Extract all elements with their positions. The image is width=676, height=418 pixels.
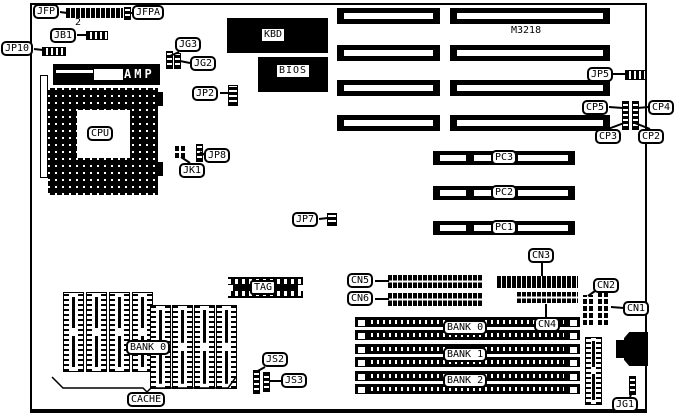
- cn1-block: [598, 293, 610, 325]
- callout-jk1: JK1: [179, 163, 205, 178]
- isa-slot: [450, 115, 610, 131]
- pc3-label: PC3: [491, 150, 517, 165]
- amp-label: AMP: [124, 67, 155, 81]
- motherboard-diagram: JFP 2 JFPA JB1 JP10 JG3 JG2 AMP CPU KBD …: [0, 0, 676, 418]
- callout-js2: JS2: [262, 352, 288, 367]
- isa-slot: [337, 8, 440, 24]
- cache-chip: [86, 292, 107, 372]
- cn4-connector: [517, 292, 578, 303]
- amp-bar-slot: [56, 70, 93, 73]
- cache-bank0-label: BANK 0: [126, 340, 170, 355]
- jp2-jumper: [228, 85, 238, 106]
- isa-slot: [450, 45, 610, 61]
- callout-jp8: JP8: [204, 148, 230, 163]
- cache-chip: [63, 292, 84, 372]
- cache-label: CACHE: [127, 392, 165, 407]
- cache-chip: [194, 305, 215, 389]
- cn2-block: [583, 295, 595, 325]
- bank1-label: BANK 1: [443, 347, 487, 362]
- isa-slot: [450, 80, 610, 96]
- isa-slot: [450, 8, 610, 24]
- jfpa-connector: [124, 7, 131, 20]
- callout-jfp: JFP: [33, 4, 59, 19]
- callout-cp3: CP3: [595, 129, 621, 144]
- callout-jfpa: JFPA: [132, 5, 164, 20]
- cn3-connector: [497, 276, 578, 288]
- callout-cp5: CP5: [582, 100, 608, 115]
- cp-jumper-strip-right: [632, 101, 639, 130]
- js2-jumper: [253, 370, 260, 394]
- bios-label: BIOS: [277, 65, 309, 77]
- jb1-jumper: [86, 31, 108, 40]
- isa-slot: [337, 115, 440, 131]
- callout-cn1: CN1: [623, 301, 649, 316]
- cn6-connector: [388, 293, 482, 306]
- bank0-label: BANK 0: [443, 320, 487, 335]
- jp5-jumper: [625, 70, 646, 80]
- callout-jp10: JP10: [1, 41, 33, 56]
- bank2-label: BANK 2: [443, 373, 487, 388]
- jp8-jumper: [196, 144, 203, 162]
- callout-jg3: JG3: [175, 37, 201, 52]
- cpu-label: CPU: [87, 126, 113, 141]
- cp-jumper-strip-left: [622, 101, 629, 130]
- callout-jb1: JB1: [50, 28, 76, 43]
- keyboard-din-connector: [624, 332, 648, 366]
- board-model-text: M3218: [511, 25, 541, 36]
- callout-jp5: JP5: [587, 67, 613, 82]
- jg1-jumper: [629, 376, 636, 395]
- tag-label: TAG: [250, 280, 276, 295]
- pc2-label: PC2: [491, 185, 517, 200]
- socket-tab-bottom: [156, 162, 163, 176]
- jp10-jumper: [42, 47, 66, 56]
- cache-chip: [109, 292, 130, 372]
- callout-cn6: CN6: [347, 291, 373, 306]
- callout-cn3: CN3: [528, 248, 554, 263]
- cache-chip: [172, 305, 193, 389]
- jp7-jumper: [327, 213, 337, 226]
- cache-chip: [216, 305, 237, 389]
- callout-cn2: CN2: [593, 278, 619, 293]
- jg2-connector: [174, 53, 181, 69]
- callout-jp7: JP7: [292, 212, 318, 227]
- socket-tab-top: [156, 92, 163, 106]
- keyboard-din-step: [616, 340, 624, 358]
- jg3-connector: [166, 51, 173, 69]
- jfp-pin2-label: 2: [75, 17, 81, 28]
- callout-cp4: CP4: [648, 100, 674, 115]
- cn5-connector: [388, 275, 482, 288]
- callout-cn5: CN5: [347, 273, 373, 288]
- pc1-label: PC1: [491, 220, 517, 235]
- socket-lever: [40, 75, 48, 178]
- jk1-block: [175, 146, 185, 158]
- amp-bar-window: [94, 69, 123, 80]
- callout-jp2: JP2: [192, 86, 218, 101]
- callout-cp2: CP2: [638, 129, 664, 144]
- isa-slot: [337, 45, 440, 61]
- io-chip: [585, 337, 602, 405]
- callout-js3: JS3: [281, 373, 307, 388]
- callout-jg1: JG1: [612, 397, 638, 412]
- isa-slot: [337, 80, 440, 96]
- js3-jumper: [263, 372, 270, 392]
- callout-jg2: JG2: [190, 56, 216, 71]
- kbd-label: KBD: [262, 29, 284, 41]
- callout-cn4: CN4: [534, 317, 560, 332]
